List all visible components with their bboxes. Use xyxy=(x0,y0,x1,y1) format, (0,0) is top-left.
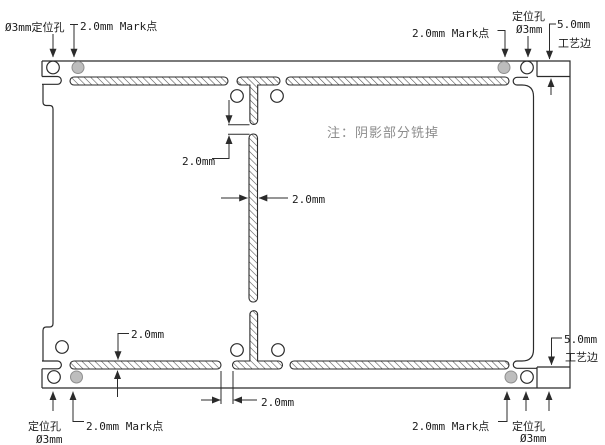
process-edge-divider-top-right xyxy=(537,61,570,77)
board-right-edge xyxy=(513,77,537,368)
positioning-hole-bottom-right xyxy=(521,371,534,384)
milled-areas xyxy=(70,77,509,369)
milled-slot-top-right xyxy=(286,77,509,85)
label-top-right-mark: 2.0mm Mark点 xyxy=(412,27,489,40)
dim-slot-width: 2.0mm xyxy=(292,193,325,206)
label-bottom-left-hole-name: 定位孔 xyxy=(28,419,61,433)
label-top-right-hole-name: 定位孔 xyxy=(512,9,545,23)
pcb-panel-drawing: Ø3mm定位孔 2.0mm Mark点 2.0mm Mark点 定位孔 Ø3mm… xyxy=(0,0,605,445)
arrow-top-right-mark xyxy=(498,31,506,58)
label-bottom-right-mark: 2.0mm Mark点 xyxy=(412,420,489,433)
mark-point-bottom-left xyxy=(71,371,83,383)
panel-outline xyxy=(42,61,570,388)
panel-outer-edge xyxy=(42,61,570,388)
label-top-right-hole-size: Ø3mm xyxy=(516,23,543,36)
label-top-right-edge-name: 工艺边 xyxy=(558,37,591,50)
routed-slot-top-left xyxy=(42,77,61,85)
positioning-hole-bottom-left xyxy=(48,371,61,384)
arrow-top-right-edge-down xyxy=(550,24,557,59)
process-edge-divider-bottom-right xyxy=(537,367,570,388)
milled-slot-bottom-left xyxy=(70,361,221,369)
mark-point-bottom-right xyxy=(505,371,517,383)
arrow-bottom-right-edge-down xyxy=(552,338,563,365)
label-bottom-right-edge-size: 5.0mm xyxy=(564,333,597,346)
arrow-bottom-right-mark xyxy=(498,392,507,422)
positioning-holes xyxy=(47,61,534,383)
label-bottom-left-hole-size: Ø3mm xyxy=(36,433,63,445)
drawing-canvas: Ø3mm定位孔 2.0mm Mark点 2.0mm Mark点 定位孔 Ø3mm… xyxy=(0,0,605,445)
label-top-right-edge-size: 5.0mm xyxy=(557,18,590,31)
milled-slot-center-vertical xyxy=(249,134,258,302)
dim-top-bridge: 2.0mm xyxy=(182,155,215,168)
milled-slot-top-left xyxy=(70,77,228,85)
dim-slot-height: 2.0mm xyxy=(131,328,164,341)
tooling-hole-bottom-left xyxy=(56,341,69,354)
label-bottom-right-hole-name: 定位孔 xyxy=(512,419,545,433)
label-top-left-mark: 2.0mm Mark点 xyxy=(80,20,157,33)
milled-slot-bottom-right xyxy=(290,361,509,369)
leader-bottom-left-mark xyxy=(73,411,84,422)
label-top-left-hole: Ø3mm定位孔 xyxy=(5,20,65,34)
mark-point-top-left xyxy=(72,62,84,74)
board-left-edge xyxy=(43,84,53,361)
mark-point-top-right xyxy=(498,62,510,74)
tooling-hole-bottom-center-right xyxy=(272,344,285,357)
note-milled-areas: 注：阴影部分铣掉 xyxy=(327,126,439,141)
label-bottom-right-edge-name: 工艺边 xyxy=(565,351,598,364)
tooling-hole-top-center-right xyxy=(271,90,284,103)
tooling-hole-top-center-left xyxy=(231,90,244,103)
tooling-hole-bottom-center-left xyxy=(231,344,244,357)
positioning-hole-top-right xyxy=(521,61,534,74)
positioning-hole-top-left xyxy=(47,61,60,74)
label-bottom-right-hole-size: Ø3mm xyxy=(520,432,547,445)
arrow-slot-height-down xyxy=(118,334,129,360)
milled-slot-bottom-tee xyxy=(233,311,283,369)
dim-bottom-bridge: 2.0mm xyxy=(261,396,294,409)
extension-lines-top-bridge xyxy=(228,125,250,134)
routed-slot-bottom-left xyxy=(42,361,61,369)
label-bottom-left-mark: 2.0mm Mark点 xyxy=(86,420,163,433)
